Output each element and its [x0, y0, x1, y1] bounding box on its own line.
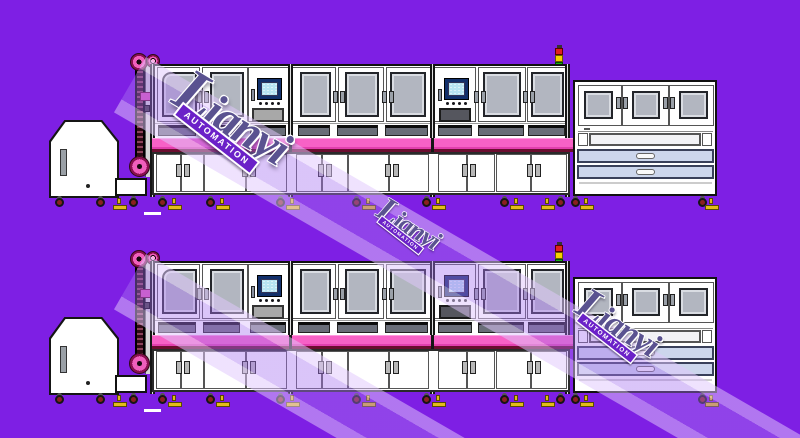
lower-cabinet-door: [348, 351, 389, 389]
belt-joint: [431, 138, 434, 152]
door-handles: [385, 164, 399, 177]
caster-wheel: [206, 395, 215, 404]
door-handles: [527, 361, 541, 374]
caster-wheel: [422, 198, 431, 207]
door-window: [390, 72, 426, 117]
caster-wheel: [96, 198, 105, 207]
caster-wheel: [158, 198, 167, 207]
leveling-foot: [584, 395, 588, 401]
elevator-pulley-bottom-icon: [129, 156, 150, 177]
monitor-buttons: [446, 299, 467, 302]
panel-handle: [438, 89, 442, 101]
door-window: [210, 269, 244, 314]
lower-cabinet-door: [348, 154, 389, 192]
assembly-line-row: [0, 45, 800, 217]
drawer-handle: [636, 366, 655, 372]
lower-window: [250, 322, 286, 333]
lower-window: [298, 322, 330, 333]
door-window: [300, 72, 331, 117]
belt-joint: [289, 335, 292, 349]
door-window: [345, 269, 379, 314]
tower-light-yellow-icon: [555, 252, 563, 259]
tower-light-yellow-icon: [555, 55, 563, 62]
caster-wheel: [556, 395, 565, 404]
door-handles: [523, 288, 535, 300]
panel-handle: [251, 89, 255, 101]
lower-cabinet-door: [496, 351, 531, 389]
door-handles: [462, 361, 476, 374]
door-handles: [176, 164, 190, 177]
work-recess: [589, 330, 701, 343]
door-window: [679, 288, 708, 316]
door-window: [632, 91, 660, 119]
door-window: [483, 269, 521, 314]
leveling-foot: [436, 395, 440, 401]
caster-wheel: [55, 198, 64, 207]
assembly-line-row: [0, 242, 800, 414]
belt-joint: [431, 335, 434, 349]
side-panel: [578, 133, 588, 146]
leveling-foot: [514, 198, 518, 204]
caster-wheel: [129, 198, 138, 207]
lower-window: [158, 322, 196, 333]
caster-wheel: [556, 198, 565, 207]
lower-window: [385, 125, 428, 136]
lower-window: [337, 322, 378, 333]
station-baseline: [579, 182, 712, 184]
scale-mark: [144, 409, 161, 412]
door-handles: [176, 361, 190, 374]
door-handles: [318, 361, 332, 374]
conveyor-belt: [152, 138, 573, 152]
hmi-monitor: [444, 275, 469, 297]
door-handles: [197, 91, 209, 103]
leveling-foot: [514, 395, 518, 401]
panel-handle: [251, 286, 255, 298]
door-handles: [382, 91, 394, 103]
monitor-buttons: [259, 299, 280, 302]
side-panel: [578, 330, 588, 343]
lower-window: [158, 125, 196, 136]
feeder-outfeed-table: [115, 375, 147, 393]
lower-window: [203, 125, 240, 136]
keyboard-tray: [439, 108, 471, 122]
lower-cabinet-door: [204, 351, 246, 389]
lower-window: [438, 322, 472, 333]
feeder-outfeed-table: [115, 178, 147, 196]
hmi-screen: [261, 82, 278, 96]
lower-window: [385, 322, 428, 333]
lower-cabinet-door: [204, 154, 246, 192]
door-window: [584, 288, 613, 316]
door-window: [679, 91, 708, 119]
elevator-chain: [135, 258, 145, 366]
shelf-tick: [584, 128, 590, 130]
door-window: [300, 269, 331, 314]
leveling-foot: [172, 395, 176, 401]
leveling-foot: [172, 198, 176, 204]
door-handles: [474, 288, 486, 300]
feeder-knob-icon: [86, 184, 90, 188]
drawer-handle: [636, 153, 655, 159]
station-shelf: [578, 126, 713, 132]
door-window: [531, 72, 564, 117]
work-recess: [589, 133, 701, 146]
caster-wheel: [422, 395, 431, 404]
caster-wheel: [352, 198, 361, 207]
leveling-foot: [117, 395, 121, 401]
caster-wheel: [96, 395, 105, 404]
lower-window: [298, 125, 330, 136]
side-panel: [702, 133, 712, 146]
caster-wheel: [276, 395, 285, 404]
station-shelf: [578, 323, 713, 329]
leveling-foot: [290, 198, 294, 204]
caster-wheel: [571, 198, 580, 207]
door-handles: [523, 91, 535, 103]
lower-window: [478, 322, 524, 333]
door-handles: [663, 294, 675, 306]
shelf-tick: [584, 325, 590, 327]
lower-window: [250, 125, 286, 136]
leveling-foot: [220, 198, 224, 204]
caster-wheel: [571, 395, 580, 404]
door-handles: [242, 164, 256, 177]
caster-wheel: [276, 198, 285, 207]
caster-wheel: [129, 395, 138, 404]
leveling-foot: [709, 198, 713, 204]
leveling-foot: [709, 395, 713, 401]
door-handles: [333, 288, 345, 300]
door-window: [483, 72, 521, 117]
tower-light-red-icon: [555, 48, 563, 55]
door-handles: [382, 288, 394, 300]
lower-window: [528, 322, 565, 333]
door-window: [162, 269, 197, 314]
caster-wheel: [158, 395, 167, 404]
drawer-handle: [636, 169, 655, 175]
door-handles: [663, 97, 675, 109]
hmi-screen: [261, 279, 278, 293]
lower-window: [478, 125, 524, 136]
door-window: [210, 72, 244, 117]
keyboard-tray: [439, 305, 471, 319]
door-window: [390, 269, 426, 314]
leveling-foot: [584, 198, 588, 204]
caster-wheel: [500, 395, 509, 404]
side-panel: [702, 330, 712, 343]
machine-line-drawing: Lianyi AUTOMATION Lianyi AUTOMATION Lian…: [0, 0, 800, 438]
monitor-buttons: [259, 102, 280, 105]
leveling-foot: [545, 395, 549, 401]
conveyor-belt: [152, 335, 573, 349]
keyboard-tray: [252, 305, 284, 319]
door-handles: [197, 288, 209, 300]
belt-joint: [289, 138, 292, 152]
door-handles: [242, 361, 256, 374]
leveling-foot: [220, 395, 224, 401]
feeder-slot: [60, 346, 67, 373]
lower-window: [337, 125, 378, 136]
door-handles: [333, 91, 345, 103]
scale-mark: [144, 212, 161, 215]
hmi-monitor: [444, 78, 469, 100]
elevator-pulley-bottom-icon: [129, 353, 150, 374]
hmi-monitor: [257, 78, 282, 100]
leveling-foot: [366, 198, 370, 204]
door-handles: [385, 361, 399, 374]
door-window: [345, 72, 379, 117]
hmi-screen: [448, 279, 465, 293]
leveling-foot: [545, 198, 549, 204]
lower-window: [528, 125, 565, 136]
lower-window: [438, 125, 472, 136]
leveling-foot: [366, 395, 370, 401]
feeder-knob-icon: [86, 381, 90, 385]
door-handles: [462, 164, 476, 177]
door-window: [632, 288, 660, 316]
hmi-screen: [448, 82, 465, 96]
door-handles: [474, 91, 486, 103]
feeder-slot: [60, 149, 67, 176]
tower-light-red-icon: [555, 245, 563, 252]
panel-handle: [438, 286, 442, 298]
caster-wheel: [500, 198, 509, 207]
door-handles: [616, 97, 628, 109]
elevator-chain: [135, 61, 145, 169]
keyboard-tray: [252, 108, 284, 122]
door-handles: [616, 294, 628, 306]
lower-window: [203, 322, 240, 333]
caster-wheel: [352, 395, 361, 404]
door-window: [162, 72, 197, 117]
leveling-foot: [290, 395, 294, 401]
hmi-monitor: [257, 275, 282, 297]
leveling-foot: [117, 198, 121, 204]
caster-wheel: [55, 395, 64, 404]
door-window: [584, 91, 613, 119]
door-handles: [318, 164, 332, 177]
station-baseline: [579, 379, 712, 381]
door-handles: [527, 164, 541, 177]
monitor-buttons: [446, 102, 467, 105]
leveling-foot: [436, 198, 440, 204]
drawer-handle: [636, 350, 655, 356]
door-window: [531, 269, 564, 314]
caster-wheel: [206, 198, 215, 207]
lower-cabinet-door: [496, 154, 531, 192]
